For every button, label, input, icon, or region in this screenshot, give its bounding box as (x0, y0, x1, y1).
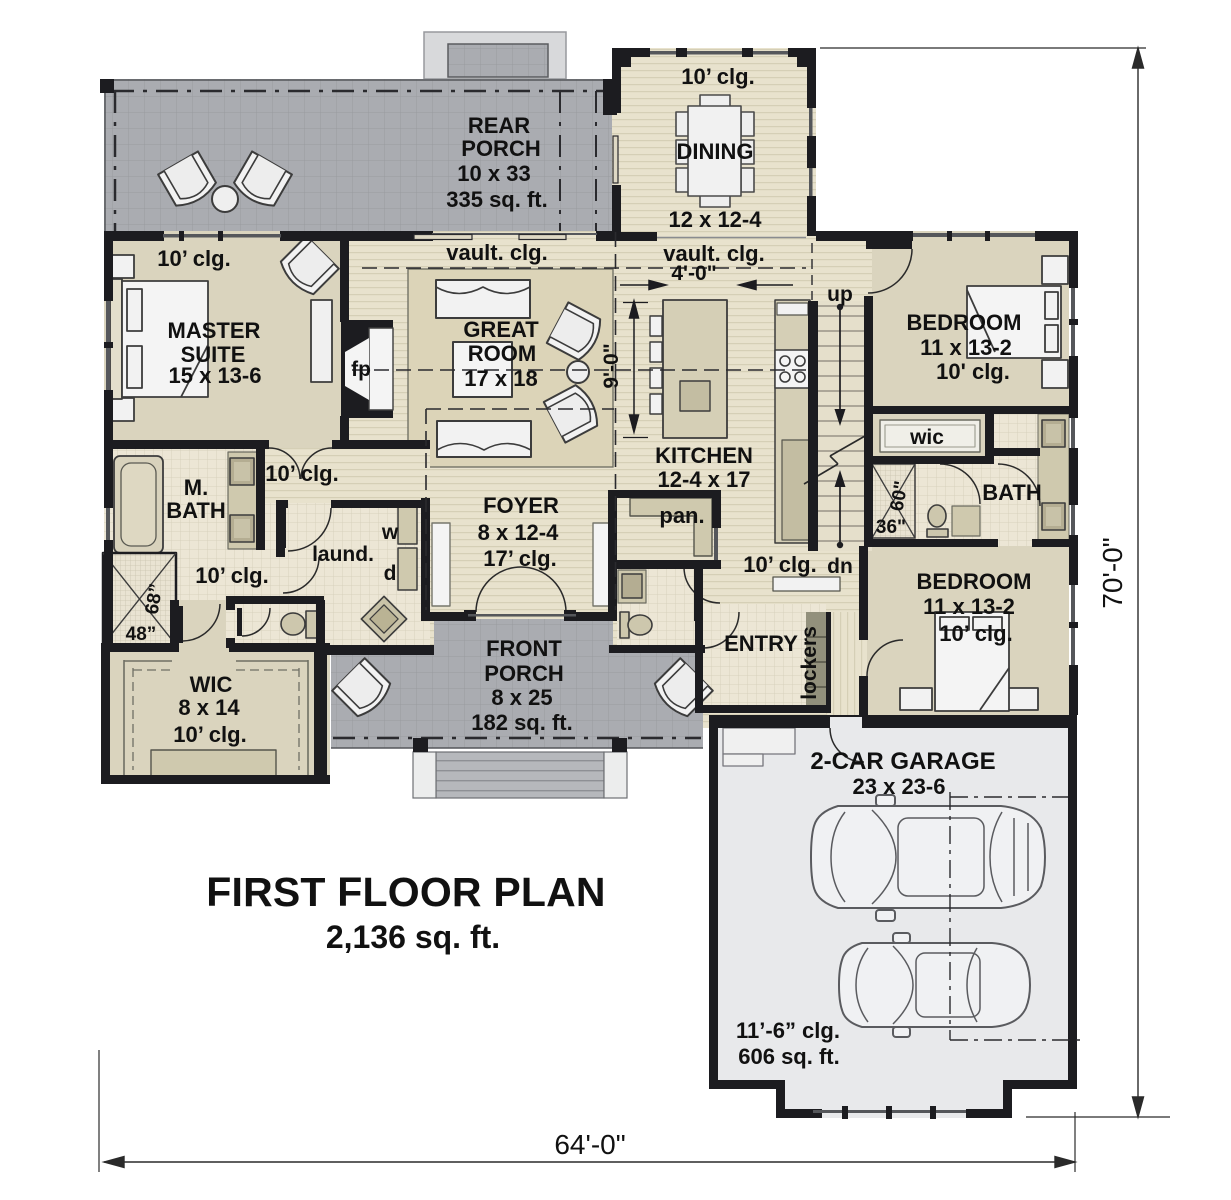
svg-text:wic: wic (909, 426, 944, 449)
svg-text:9'-0": 9'-0" (600, 343, 623, 388)
svg-text:17 x 18: 17 x 18 (464, 366, 537, 391)
svg-text:23 x 23-6: 23 x 23-6 (853, 774, 946, 799)
svg-text:70'-0": 70'-0" (1097, 537, 1128, 608)
svg-text:8 x 12-4: 8 x 12-4 (478, 520, 559, 545)
svg-text:4'-0": 4'-0" (671, 262, 716, 285)
svg-text:64'-0": 64'-0" (554, 1129, 625, 1160)
svg-text:REAR: REAR (468, 113, 530, 138)
svg-text:335 sq. ft.: 335 sq. ft. (446, 187, 547, 212)
svg-text:36": 36" (876, 517, 906, 538)
svg-text:11 x 13-2: 11 x 13-2 (920, 335, 1012, 360)
svg-text:11 x 13-2: 11 x 13-2 (923, 594, 1015, 619)
svg-text:BEDROOM: BEDROOM (907, 310, 1022, 335)
svg-text:10’ clg.: 10’ clg. (173, 722, 246, 747)
svg-text:d: d (384, 562, 397, 585)
svg-text:laund.: laund. (312, 543, 374, 566)
svg-text:BATH: BATH (982, 480, 1041, 505)
svg-text:10’ clg.: 10’ clg. (939, 621, 1012, 646)
svg-text:vault. clg.: vault. clg. (446, 240, 547, 265)
svg-text:48”: 48” (126, 624, 157, 645)
svg-text:dn: dn (827, 555, 853, 578)
svg-text:ENTRY: ENTRY (724, 631, 798, 656)
svg-text:fp: fp (351, 358, 371, 381)
svg-text:2-CAR GARAGE: 2-CAR GARAGE (810, 748, 995, 775)
svg-text:KITCHEN: KITCHEN (655, 443, 753, 468)
svg-text:WIC: WIC (190, 672, 233, 697)
svg-text:w: w (381, 521, 399, 544)
svg-text:lockers: lockers (798, 626, 821, 700)
svg-text:182 sq. ft.: 182 sq. ft. (471, 710, 572, 735)
svg-text:PORCH: PORCH (461, 136, 540, 161)
svg-text:FRONT: FRONT (486, 636, 562, 661)
svg-text:606 sq. ft.: 606 sq. ft. (738, 1044, 839, 1069)
svg-text:12 x 12-4: 12 x 12-4 (669, 207, 763, 232)
svg-text:2,136 sq. ft.: 2,136 sq. ft. (326, 919, 500, 955)
svg-text:11’-6” clg.: 11’-6” clg. (736, 1018, 840, 1043)
svg-text:8 x 14: 8 x 14 (178, 695, 240, 720)
svg-text:17’ clg.: 17’ clg. (483, 546, 556, 571)
svg-text:BEDROOM: BEDROOM (917, 569, 1032, 594)
svg-text:up: up (827, 283, 853, 306)
svg-text:FIRST FLOOR PLAN: FIRST FLOOR PLAN (206, 869, 606, 915)
svg-text:BATH: BATH (166, 498, 225, 523)
svg-text:10 x 33: 10 x 33 (457, 161, 530, 186)
svg-text:DINING: DINING (677, 139, 754, 164)
svg-text:FOYER: FOYER (483, 493, 559, 518)
svg-text:15 x 13-6: 15 x 13-6 (169, 363, 262, 388)
svg-text:MASTER: MASTER (168, 318, 261, 343)
svg-text:ROOM: ROOM (468, 341, 536, 366)
svg-text:PORCH: PORCH (484, 661, 563, 686)
svg-text:10’ clg.: 10’ clg. (265, 461, 338, 486)
svg-text:pan.: pan. (659, 503, 704, 528)
svg-text:10’ clg.: 10’ clg. (743, 552, 816, 577)
svg-text:8 x 25: 8 x 25 (491, 685, 552, 710)
svg-text:10’ clg.: 10’ clg. (157, 246, 230, 271)
svg-text:10’ clg.: 10’ clg. (681, 64, 754, 89)
svg-text:M.: M. (184, 475, 208, 500)
svg-text:10' clg.: 10' clg. (936, 359, 1010, 384)
svg-text:GREAT: GREAT (463, 317, 539, 342)
svg-text:12-4 x 17: 12-4 x 17 (658, 467, 751, 492)
svg-text:10’ clg.: 10’ clg. (195, 563, 268, 588)
